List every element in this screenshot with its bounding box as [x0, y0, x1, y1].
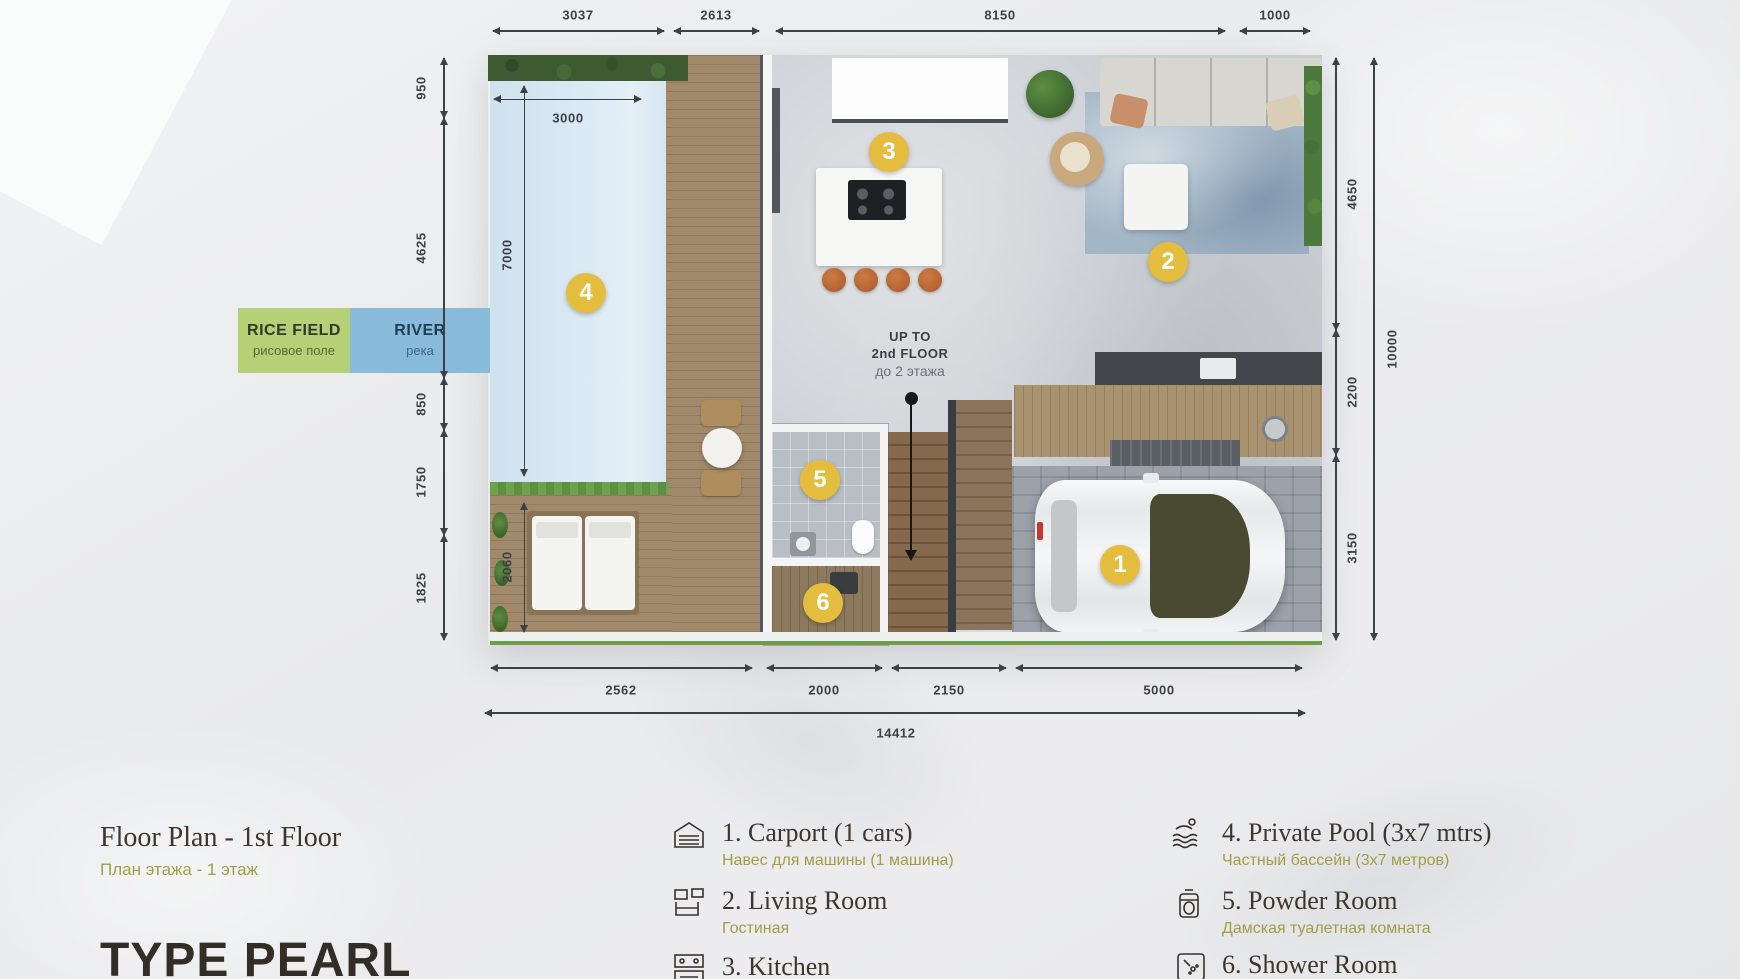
legend-title: 4. Private Pool (3x7 mtrs) — [1222, 818, 1491, 848]
dim-bottom-3: 2150 — [933, 684, 964, 697]
coffee-table — [1124, 164, 1188, 230]
stair-flight-left — [878, 432, 948, 640]
dining-chair — [701, 400, 741, 426]
river-label: RIVER река — [350, 308, 490, 373]
dim-right-2: 2200 — [1346, 376, 1359, 407]
legend-num: 2. — [722, 886, 742, 915]
legend-item-carport: 1. Carport (1 cars) Навес для машины (1 … — [722, 818, 954, 870]
plant-tuft — [492, 512, 508, 538]
floor-plan-page: UP TO 2nd FLOOR до 2 этажа 1 2 3 4 5 6 R… — [0, 0, 1740, 979]
car — [1035, 480, 1285, 632]
shower-room-icon — [1174, 950, 1208, 979]
dim-bottom-1: 2562 — [605, 684, 636, 697]
toilet — [852, 520, 874, 554]
dim-lounger: 2060 — [501, 551, 514, 582]
page-title: Floor Plan - 1st Floor — [100, 822, 341, 854]
legend-title: 5. Powder Room — [1222, 886, 1431, 916]
car-rear-window — [1051, 500, 1077, 612]
stair-rail — [948, 400, 956, 632]
dim-left-3: 850 — [415, 392, 428, 416]
wall — [762, 55, 772, 645]
sun-lounger — [532, 516, 582, 610]
stair-flight-right — [956, 400, 1012, 630]
legend-name: Kitchen — [748, 952, 830, 979]
legend-num: 3. — [722, 952, 742, 979]
legend-num: 1. — [722, 818, 742, 847]
rice-field-label: RICE FIELD рисовое поле — [238, 308, 350, 373]
dim-arrow-bottom-3 — [892, 667, 1006, 669]
legend-item-private-pool: 4. Private Pool (3x7 mtrs) Частный бассе… — [1222, 818, 1491, 870]
legend-item-shower-room: 6. Shower Room — [1222, 950, 1398, 979]
stair-arrow-head — [905, 550, 917, 561]
background-corner-highlight — [0, 0, 261, 245]
dim-arrow-left-5 — [443, 535, 445, 640]
dim-arrow-right-2 — [1335, 330, 1337, 455]
legend-ru: Частный бассейн (3х7 метров) — [1222, 852, 1491, 870]
stair-arrow-line — [910, 402, 912, 552]
pool-deck — [666, 55, 772, 645]
page-title-ru: План этажа - 1 этаж — [100, 860, 258, 880]
wall-segment — [832, 119, 1008, 123]
wall-line — [760, 55, 763, 645]
legend-title: 1. Carport (1 cars) — [722, 818, 954, 848]
dim-arrow-left-4 — [443, 430, 445, 535]
dim-right-3: 3150 — [1346, 532, 1359, 563]
dim-arrow-right-3 — [1335, 455, 1337, 640]
legend-name: Powder Room — [1248, 886, 1398, 915]
dim-bottom-2: 2000 — [808, 684, 839, 697]
pool-icon — [1170, 816, 1204, 850]
room-marker-6: 6 — [803, 583, 843, 623]
room-marker-1: 1 — [1100, 545, 1140, 585]
bottom-wall — [490, 632, 1322, 641]
dim-left-4: 1750 — [415, 466, 428, 497]
rice-field-en: RICE FIELD — [238, 322, 350, 340]
dim-right-total: 10000 — [1386, 329, 1399, 368]
dim-arrow-bottom-2 — [767, 667, 882, 669]
cooktop — [848, 180, 906, 220]
dining-chair — [701, 470, 741, 496]
dim-top-2: 2613 — [700, 9, 731, 22]
living-room-icon — [672, 886, 706, 920]
dim-arrow-top-2 — [674, 30, 759, 32]
dim-arrow-top-4 — [1240, 30, 1310, 32]
dim-arrow-bottom-total — [485, 712, 1305, 714]
legend-item-powder-room: 5. Powder Room Дамская туалетная комната — [1222, 886, 1431, 938]
plant-tuft — [492, 606, 508, 632]
dim-top-4: 1000 — [1259, 9, 1290, 22]
carport-icon — [672, 818, 706, 852]
dim-pool-width: 3000 — [552, 112, 583, 125]
outdoor-shower-drain — [1262, 416, 1288, 442]
legend-name: Living Room — [748, 886, 887, 915]
dim-top-1: 3037 — [562, 9, 593, 22]
dim-left-5: 1825 — [415, 572, 428, 603]
dim-left-1: 950 — [415, 76, 428, 100]
legend-title: 3. Kitchen — [722, 952, 830, 979]
car-windshield — [1150, 494, 1250, 618]
armchair — [1050, 132, 1104, 186]
legend-ru: Дамская туалетная комната — [1222, 920, 1431, 938]
room-marker-4: 4 — [566, 273, 606, 313]
room-marker-2: 2 — [1148, 242, 1188, 282]
lounger-platform — [527, 511, 639, 615]
bar-stool — [822, 268, 846, 292]
legend-name: Carport (1 cars) — [748, 818, 913, 847]
room-marker-3: 3 — [869, 132, 909, 172]
legend-ru: Гостиная — [722, 920, 887, 938]
legend-num: 5. — [1222, 886, 1242, 915]
hedge-top — [488, 55, 688, 81]
legend-item-living-room: 2. Living Room Гостиная — [722, 886, 887, 938]
dim-arrow-left-3 — [443, 378, 445, 430]
legend-num: 4. — [1222, 818, 1242, 847]
potted-plant — [1026, 70, 1074, 118]
dim-bottom-total: 14412 — [876, 727, 915, 740]
stair-note-ru: до 2 этажа — [872, 362, 949, 380]
legend-num: 6. — [1222, 950, 1242, 979]
bar-stool — [918, 268, 942, 292]
dim-left-2: 4625 — [415, 232, 428, 263]
entry-mat — [1110, 440, 1240, 466]
legend-title: 6. Shower Room — [1222, 950, 1398, 979]
bar-stool — [854, 268, 878, 292]
bottom-grass — [490, 641, 1322, 645]
hedge-right — [1304, 66, 1322, 246]
dim-arrow-bottom-4 — [1016, 667, 1302, 669]
dim-arrow-left-1 — [443, 58, 445, 118]
dim-arrow-lounger — [524, 503, 525, 632]
dim-right-1: 4650 — [1346, 178, 1359, 209]
wall-segment — [772, 88, 780, 213]
washbasin — [790, 532, 816, 556]
grass-strip — [490, 482, 668, 495]
roof-void — [832, 58, 1008, 122]
rice-field-ru: рисовое поле — [238, 343, 350, 358]
dim-arrow-top-3 — [776, 30, 1225, 32]
legend-title: 2. Living Room — [722, 886, 887, 916]
legend-name: Shower Room — [1248, 950, 1398, 979]
dim-arrow-pool-length — [524, 86, 525, 476]
room-marker-5: 5 — [800, 460, 840, 500]
dim-arrow-top-1 — [493, 30, 664, 32]
stair-note: UP TO 2nd FLOOR до 2 этажа — [872, 328, 949, 380]
dim-bottom-4: 5000 — [1143, 684, 1174, 697]
dim-top-3: 8150 — [984, 9, 1015, 22]
stair-note-line2: 2nd FLOOR — [872, 345, 949, 362]
river-en: RIVER — [350, 322, 490, 340]
car-mirror — [1143, 473, 1159, 483]
dim-arrow-right-total — [1373, 58, 1375, 640]
stair-note-line1: UP TO — [872, 328, 949, 345]
dim-arrow-bottom-1 — [491, 667, 752, 669]
kitchen-icon — [672, 952, 706, 979]
dining-table — [702, 428, 742, 468]
dim-arrow-left-2 — [443, 118, 445, 378]
legend-name: Private Pool (3x7 mtrs) — [1248, 818, 1491, 847]
counter-sink — [1200, 358, 1236, 379]
dim-arrow-right-1 — [1335, 58, 1337, 330]
car-taillight — [1037, 522, 1043, 540]
legend-ru: Навес для машины (1 машина) — [722, 852, 954, 870]
dim-arrow-pool-width — [494, 99, 641, 100]
bar-stool — [886, 268, 910, 292]
powder-room-icon — [1172, 886, 1206, 920]
river-ru: река — [350, 343, 490, 358]
legend-item-kitchen: 3. Kitchen — [722, 952, 830, 979]
type-name: TYPE PEARL — [100, 933, 411, 979]
sun-lounger — [585, 516, 635, 610]
dim-pool-length: 7000 — [501, 239, 514, 270]
